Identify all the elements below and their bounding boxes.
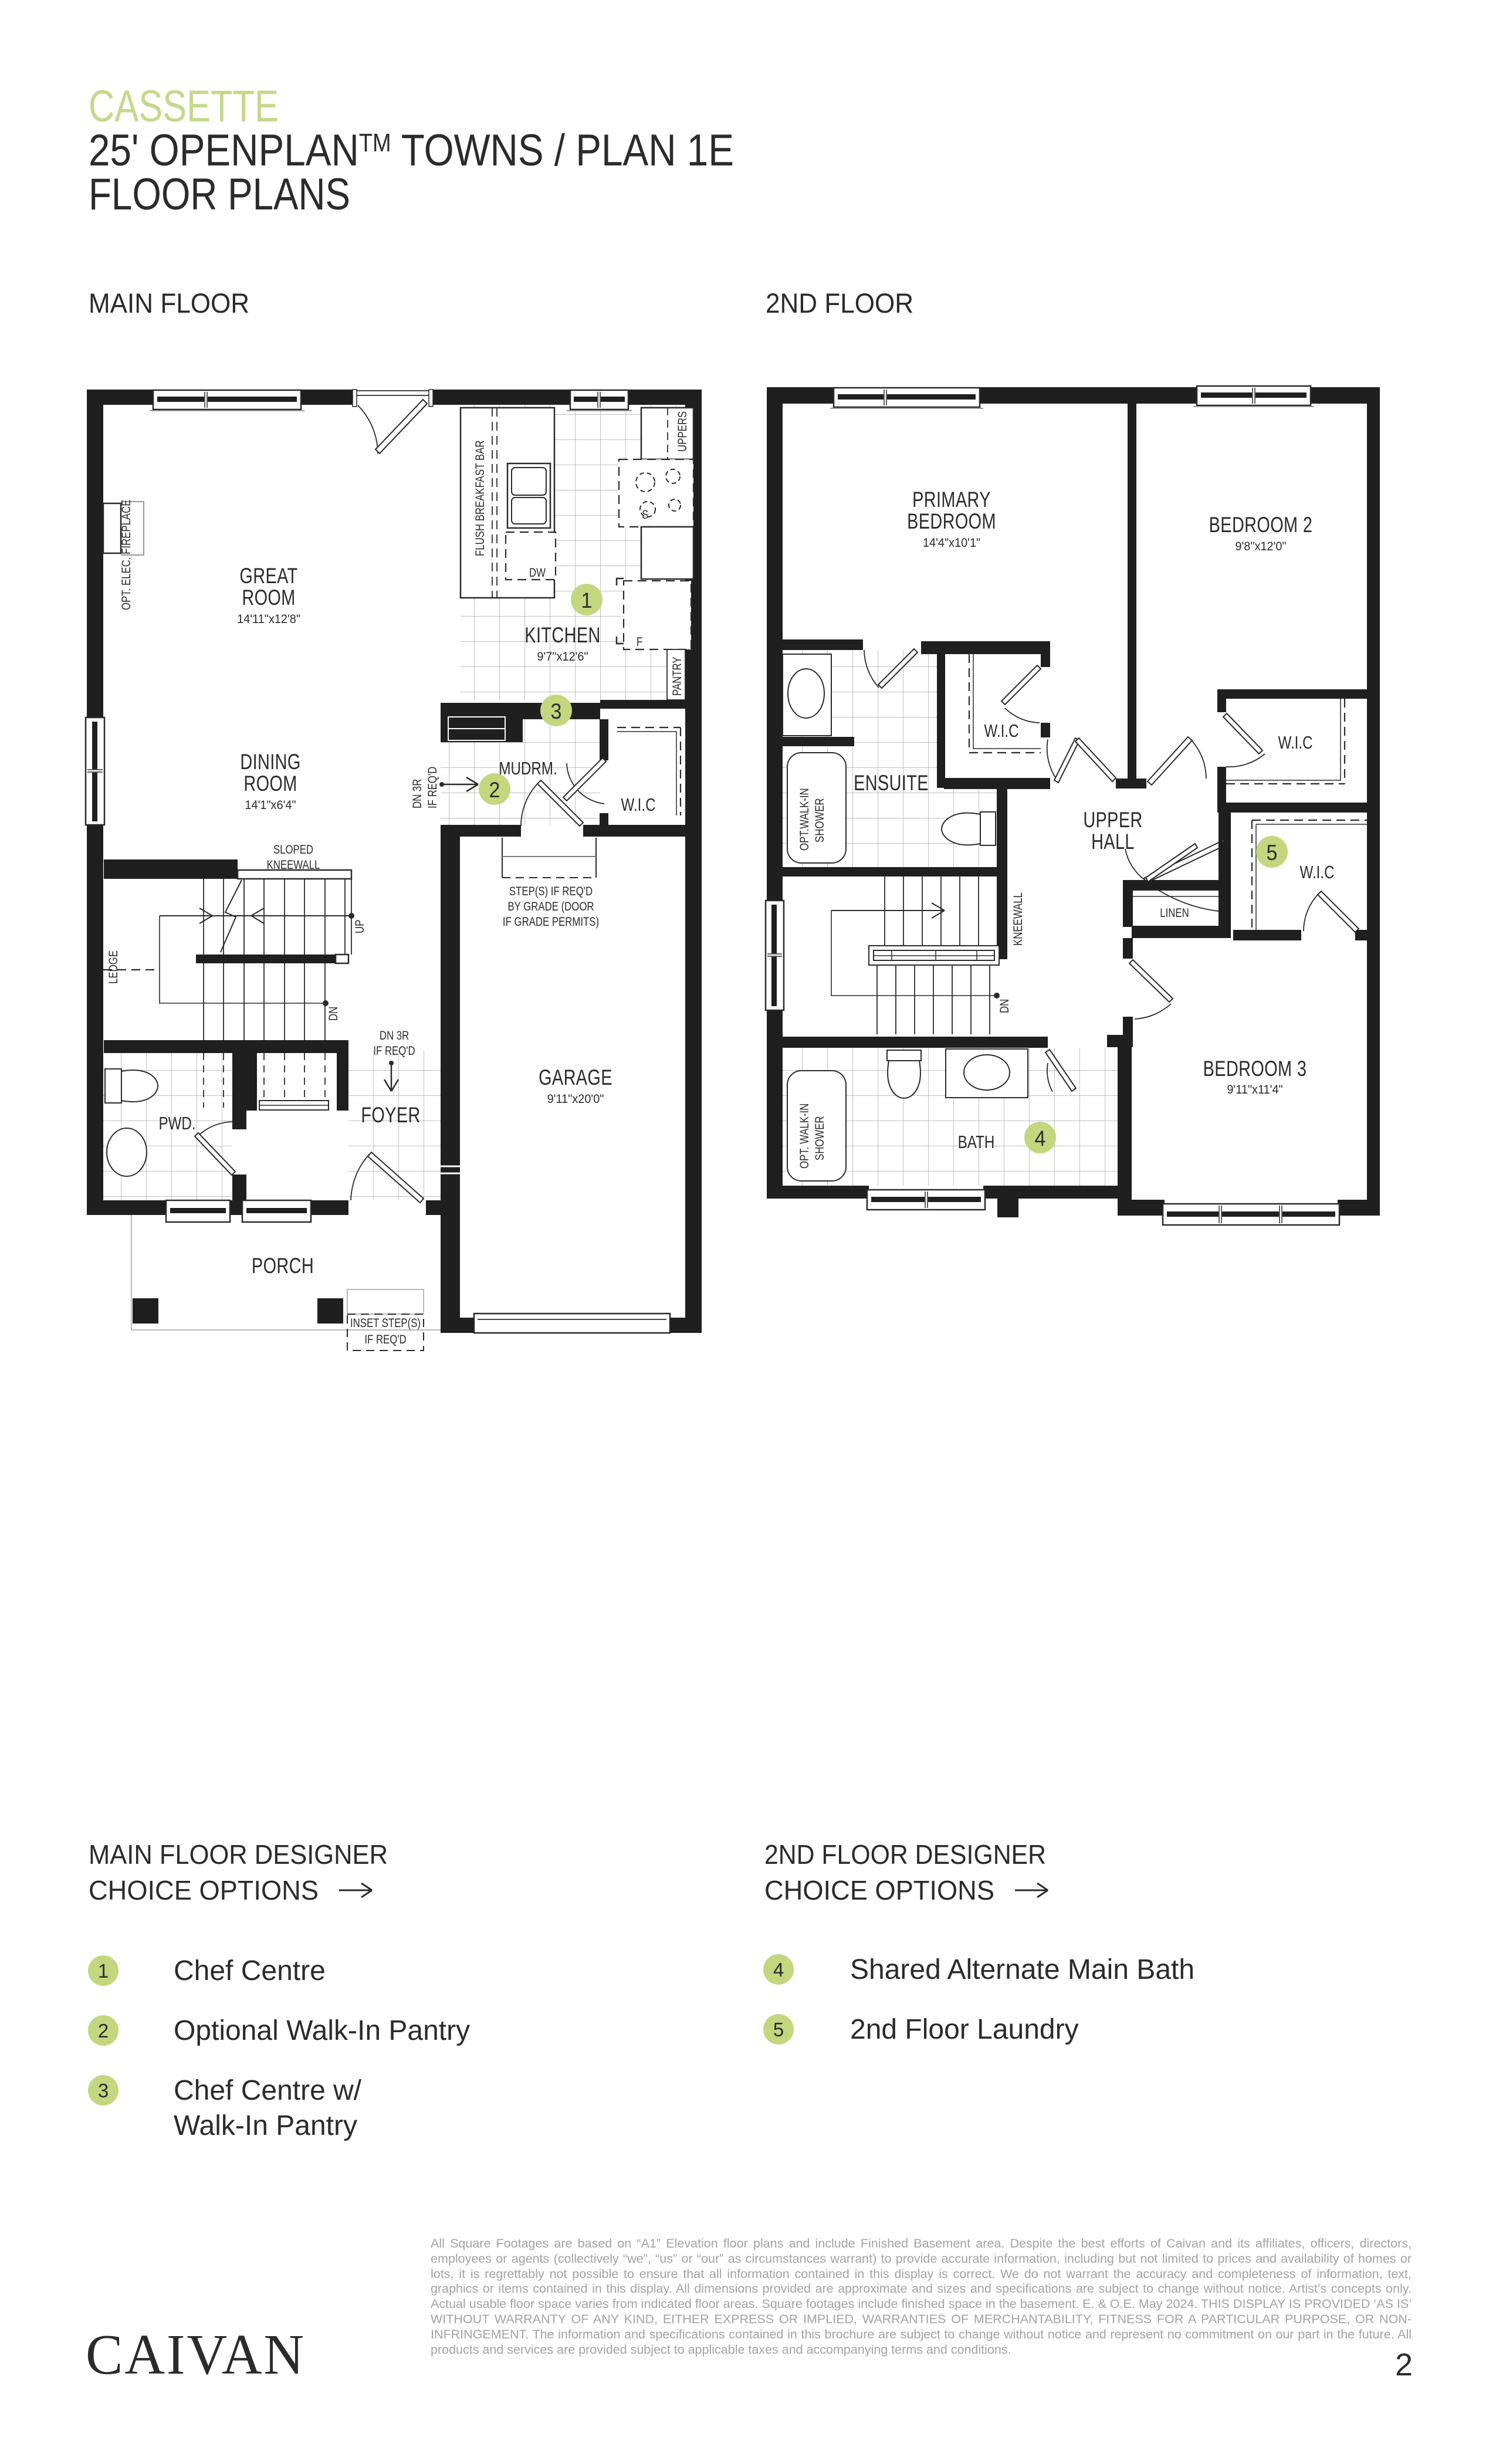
svg-text:MAIN FLOOR DESIGNER: MAIN FLOOR DESIGNER bbox=[89, 1839, 388, 1870]
svg-text:MUDRM.: MUDRM. bbox=[499, 758, 557, 779]
svg-text:BY GRADE (DOOR: BY GRADE (DOOR bbox=[507, 900, 594, 913]
svg-text:CHOICE OPTIONS: CHOICE OPTIONS bbox=[764, 1875, 994, 1905]
svg-text:CASSETTE: CASSETTE bbox=[89, 82, 279, 131]
svg-text:ENSUITE: ENSUITE bbox=[854, 771, 929, 796]
svg-text:SHOWER: SHOWER bbox=[813, 798, 827, 842]
svg-text:DW: DW bbox=[529, 566, 546, 580]
svg-text:9'8"x12'0": 9'8"x12'0" bbox=[1235, 540, 1286, 554]
svg-text:9'11"x11'4": 9'11"x11'4" bbox=[1227, 1083, 1282, 1097]
svg-text:W.I.C: W.I.C bbox=[1299, 862, 1334, 882]
svg-text:BEDROOM 3: BEDROOM 3 bbox=[1203, 1057, 1307, 1081]
svg-text:PWD.: PWD. bbox=[158, 1113, 195, 1133]
svg-text:CAIVAN: CAIVAN bbox=[86, 2323, 306, 2386]
svg-text:Walk-In Pantry: Walk-In Pantry bbox=[174, 2110, 357, 2141]
svg-text:OPT.WALK-IN: OPT.WALK-IN bbox=[798, 788, 811, 851]
svg-text:W.I.C: W.I.C bbox=[621, 794, 655, 815]
svg-text:SLOPED: SLOPED bbox=[273, 843, 313, 857]
svg-text:BEDROOM: BEDROOM bbox=[907, 510, 996, 534]
svg-text:IF REQ'D: IF REQ'D bbox=[426, 767, 439, 808]
svg-text:PANTRY: PANTRY bbox=[671, 656, 684, 696]
svg-text:ROOM: ROOM bbox=[243, 772, 297, 796]
svg-text:9'7"x12'6": 9'7"x12'6" bbox=[537, 650, 588, 664]
svg-text:5: 5 bbox=[773, 2019, 784, 2040]
svg-text:OPT. WALK-IN: OPT. WALK-IN bbox=[798, 1104, 811, 1169]
svg-text:9'11"x20'0": 9'11"x20'0" bbox=[547, 1092, 604, 1106]
svg-text:2: 2 bbox=[489, 778, 500, 803]
svg-text:3: 3 bbox=[551, 699, 562, 724]
svg-text:S: S bbox=[642, 508, 648, 522]
svg-text:5: 5 bbox=[1267, 841, 1278, 865]
svg-text:KNEEWALL: KNEEWALL bbox=[267, 858, 320, 872]
svg-text:2ND FLOOR: 2ND FLOOR bbox=[766, 287, 913, 319]
svg-text:PRIMARY: PRIMARY bbox=[912, 488, 991, 512]
svg-text:UP: UP bbox=[353, 920, 367, 933]
svg-text:FLUSH BREAKFAST BAR: FLUSH BREAKFAST BAR bbox=[473, 441, 487, 556]
svg-text:FLOOR PLANS: FLOOR PLANS bbox=[89, 170, 350, 219]
svg-text:14'11"x12'8": 14'11"x12'8" bbox=[237, 612, 300, 627]
svg-text:STEP(S) IF REQ'D: STEP(S) IF REQ'D bbox=[509, 885, 593, 898]
svg-text:F: F bbox=[637, 635, 642, 649]
svg-text:KNEEWALL: KNEEWALL bbox=[1011, 892, 1025, 946]
svg-text:IF GRADE PERMITS): IF GRADE PERMITS) bbox=[503, 915, 599, 929]
svg-text:2nd Floor Laundry: 2nd Floor Laundry bbox=[850, 2014, 1079, 2045]
svg-text:25' OPENPLANTM TOWNS / PLAN 1E: 25' OPENPLANTM TOWNS / PLAN 1E bbox=[89, 126, 734, 175]
svg-text:PORCH: PORCH bbox=[252, 1254, 314, 1278]
svg-text:CHOICE OPTIONS: CHOICE OPTIONS bbox=[89, 1875, 319, 1905]
svg-text:3: 3 bbox=[98, 2080, 109, 2101]
svg-text:UPPERS: UPPERS bbox=[676, 411, 689, 452]
svg-text:4: 4 bbox=[1035, 1126, 1046, 1151]
svg-text:IF REQ'D: IF REQ'D bbox=[373, 1044, 415, 1058]
svg-text:DN 3R: DN 3R bbox=[380, 1029, 409, 1043]
svg-text:1: 1 bbox=[98, 1960, 109, 1982]
svg-text:2ND FLOOR DESIGNER: 2ND FLOOR DESIGNER bbox=[764, 1839, 1046, 1870]
svg-text:DN: DN bbox=[327, 1007, 340, 1021]
svg-text:KITCHEN: KITCHEN bbox=[524, 624, 600, 648]
svg-text:MAIN FLOOR: MAIN FLOOR bbox=[89, 287, 249, 319]
svg-text:GREAT: GREAT bbox=[239, 564, 297, 588]
svg-text:DINING: DINING bbox=[240, 750, 300, 774]
svg-text:Chef Centre w/: Chef Centre w/ bbox=[174, 2075, 362, 2106]
svg-text:BATH: BATH bbox=[958, 1132, 995, 1152]
svg-text:INSET STEP(S): INSET STEP(S) bbox=[350, 1316, 421, 1330]
svg-text:2: 2 bbox=[98, 2020, 109, 2042]
svg-text:DN: DN bbox=[998, 999, 1011, 1013]
svg-text:FOYER: FOYER bbox=[361, 1104, 420, 1128]
svg-text:UPPER: UPPER bbox=[1083, 808, 1142, 832]
svg-text:1: 1 bbox=[581, 588, 593, 613]
svg-text:14'1"x6'4": 14'1"x6'4" bbox=[245, 798, 296, 813]
svg-text:LINEN: LINEN bbox=[1160, 906, 1189, 920]
svg-text:W.I.C: W.I.C bbox=[984, 720, 1018, 741]
svg-text:Chef Centre: Chef Centre bbox=[174, 1955, 326, 1986]
svg-text:BEDROOM 2: BEDROOM 2 bbox=[1209, 513, 1313, 537]
svg-text:HALL: HALL bbox=[1091, 830, 1135, 854]
svg-text:LEDGE: LEDGE bbox=[107, 950, 120, 984]
svg-text:OPT. ELEC. FIREPLACE: OPT. ELEC. FIREPLACE bbox=[120, 500, 133, 610]
svg-text:4: 4 bbox=[773, 1959, 784, 1981]
svg-text:Shared Alternate Main Bath: Shared Alternate Main Bath bbox=[850, 1954, 1194, 1985]
svg-text:DN 3R: DN 3R bbox=[411, 779, 424, 808]
svg-text:GARAGE: GARAGE bbox=[539, 1066, 612, 1090]
svg-text:Optional Walk-In Pantry: Optional Walk-In Pantry bbox=[174, 2015, 470, 2046]
svg-text:SHOWER: SHOWER bbox=[813, 1116, 827, 1160]
svg-text:14'4"x10'1": 14'4"x10'1" bbox=[923, 536, 980, 550]
svg-text:W.I.C: W.I.C bbox=[1278, 732, 1312, 753]
svg-text:ROOM: ROOM bbox=[242, 586, 295, 610]
svg-text:IF REQ'D: IF REQ'D bbox=[364, 1333, 406, 1346]
